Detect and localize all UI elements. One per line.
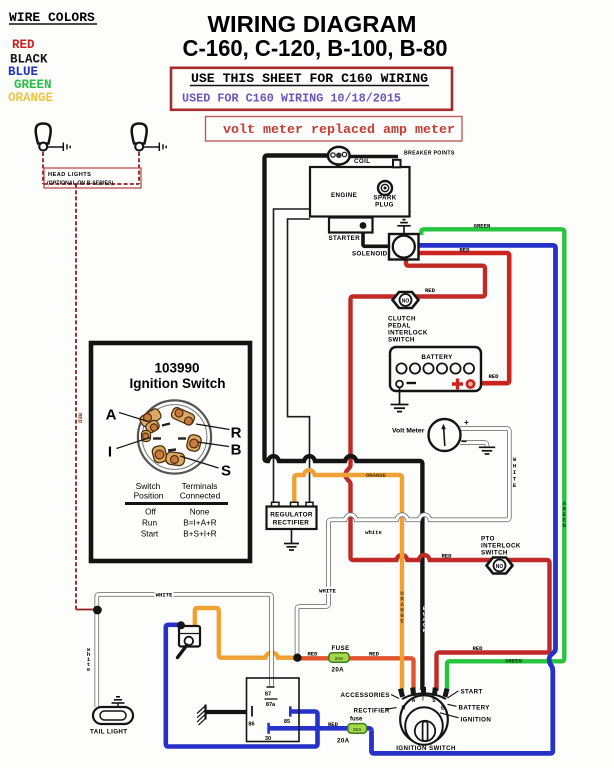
- svg-text:B+S+I+R: B+S+I+R: [183, 530, 217, 539]
- svg-text:USE THIS SHEET FOR C160 WIRING: USE THIS SHEET FOR C160 WIRING: [191, 71, 428, 86]
- svg-text:INTERLOCK: INTERLOCK: [481, 543, 521, 550]
- svg-text:ENGINE: ENGINE: [331, 192, 357, 199]
- svg-text:NO: NO: [496, 564, 504, 570]
- svg-text:SPARK: SPARK: [373, 195, 396, 202]
- svg-text:NO: NO: [402, 298, 410, 304]
- svg-text:REGULATOR: REGULATOR: [270, 512, 313, 519]
- svg-text:Connected: Connected: [180, 491, 221, 501]
- svg-text:BLUE: BLUE: [8, 65, 38, 79]
- svg-text:103990: 103990: [154, 361, 199, 376]
- svg-text:BREAKER POINTS: BREAKER POINTS: [404, 151, 455, 157]
- svg-text:ORANGE: ORANGE: [366, 472, 387, 479]
- svg-text:CLUTCH: CLUTCH: [388, 316, 416, 323]
- svg-text:FUSE: FUSE: [332, 645, 350, 652]
- svg-text:20A: 20A: [335, 656, 344, 661]
- svg-text:RED: RED: [441, 553, 452, 560]
- svg-text:BATTERY: BATTERY: [421, 354, 453, 361]
- svg-text:white: white: [365, 529, 382, 536]
- svg-text:I: I: [108, 444, 112, 461]
- svg-text:RED: RED: [472, 645, 483, 652]
- svg-text:SWITCH: SWITCH: [481, 550, 508, 557]
- svg-text:85: 85: [284, 719, 290, 725]
- svg-text:+: +: [464, 418, 469, 427]
- svg-text:PEDAL: PEDAL: [388, 323, 411, 330]
- svg-text:S: S: [221, 463, 231, 480]
- svg-text:GREEN: GREEN: [14, 78, 52, 92]
- svg-text:RED: RED: [12, 38, 35, 52]
- svg-text:86: 86: [248, 722, 254, 728]
- svg-text:fuse: fuse: [350, 717, 363, 723]
- svg-text:A: A: [106, 407, 117, 424]
- svg-text:RED: RED: [459, 247, 470, 254]
- svg-text:Run: Run: [142, 519, 157, 528]
- svg-text:R: R: [231, 425, 242, 442]
- svg-text:20A: 20A: [332, 667, 345, 674]
- svg-text:B: B: [231, 442, 242, 459]
- svg-text:Switch: Switch: [136, 481, 161, 491]
- svg-text:87a: 87a: [266, 702, 276, 708]
- svg-text:None: None: [190, 508, 210, 517]
- svg-text:COIL: COIL: [354, 158, 370, 165]
- svg-text:(OPTIONAL ON B-SERIES): (OPTIONAL ON B-SERIES): [47, 181, 114, 187]
- svg-text:20A: 20A: [353, 727, 362, 732]
- svg-text:GREEN: GREEN: [474, 223, 491, 230]
- svg-text:B=I+A+R: B=I+A+R: [183, 519, 217, 528]
- svg-text:Ignition Switch: Ignition Switch: [130, 376, 226, 391]
- svg-text:Off: Off: [145, 508, 156, 517]
- svg-text:20A: 20A: [337, 738, 350, 745]
- svg-text:RECTIFIER: RECTIFIER: [273, 520, 310, 527]
- svg-text:RED: RED: [369, 651, 380, 658]
- svg-text:Start: Start: [141, 530, 159, 539]
- svg-text:volt meter replaced amp meter: volt meter replaced amp meter: [223, 122, 455, 137]
- svg-text:R: R: [402, 706, 406, 712]
- svg-text:RED: RED: [328, 721, 339, 728]
- svg-text:PLUG: PLUG: [375, 202, 394, 209]
- svg-text:A: A: [412, 698, 416, 704]
- svg-text:STARTER: STARTER: [329, 235, 361, 242]
- svg-text:ORANGE: ORANGE: [8, 91, 53, 105]
- svg-text:BATTERY: BATTERY: [459, 705, 491, 712]
- svg-text:TAIL LIGHT: TAIL LIGHT: [90, 729, 127, 736]
- svg-text:HEAD LIGHTS: HEAD LIGHTS: [48, 172, 91, 178]
- svg-text:WHITE: WHITE: [156, 592, 173, 599]
- svg-text:IGNITION: IGNITION: [461, 717, 492, 724]
- svg-text:PTO: PTO: [481, 536, 495, 543]
- svg-text:Position: Position: [134, 491, 164, 501]
- svg-text:N: N: [563, 522, 566, 529]
- svg-text:RED: RED: [77, 413, 84, 424]
- svg-text:RED: RED: [425, 287, 436, 294]
- svg-text:C-160, C-120, B-100, B-80: C-160, C-120, B-100, B-80: [183, 35, 448, 61]
- svg-text:Volt Meter: Volt Meter: [392, 428, 425, 435]
- svg-text:RED: RED: [488, 373, 499, 380]
- svg-text:INTERLOCK: INTERLOCK: [388, 330, 428, 337]
- svg-text:IGNITION SWITCH: IGNITION SWITCH: [396, 745, 456, 752]
- svg-text:30: 30: [265, 736, 271, 742]
- svg-text:87: 87: [265, 692, 271, 698]
- svg-text:START: START: [461, 689, 483, 696]
- svg-text:Terminals: Terminals: [182, 481, 218, 491]
- svg-text:USED FOR C160 WIRING 10/18/201: USED FOR C160 WIRING 10/18/2015: [182, 92, 401, 106]
- svg-text:RECTIFIER: RECTIFIER: [354, 708, 390, 715]
- svg-text:WHITE: WHITE: [319, 588, 336, 595]
- svg-text:B: B: [441, 706, 445, 712]
- svg-text:WIRING DIAGRAM: WIRING DIAGRAM: [208, 11, 417, 37]
- svg-text:ACCESSORIES: ACCESSORIES: [341, 692, 390, 699]
- svg-text:GREEN: GREEN: [505, 658, 522, 665]
- svg-text:SOLENOID: SOLENOID: [352, 251, 388, 258]
- svg-text:WIRE COLORS: WIRE COLORS: [9, 10, 95, 25]
- svg-text:SWITCH: SWITCH: [388, 337, 415, 344]
- svg-text:RED: RED: [307, 651, 318, 658]
